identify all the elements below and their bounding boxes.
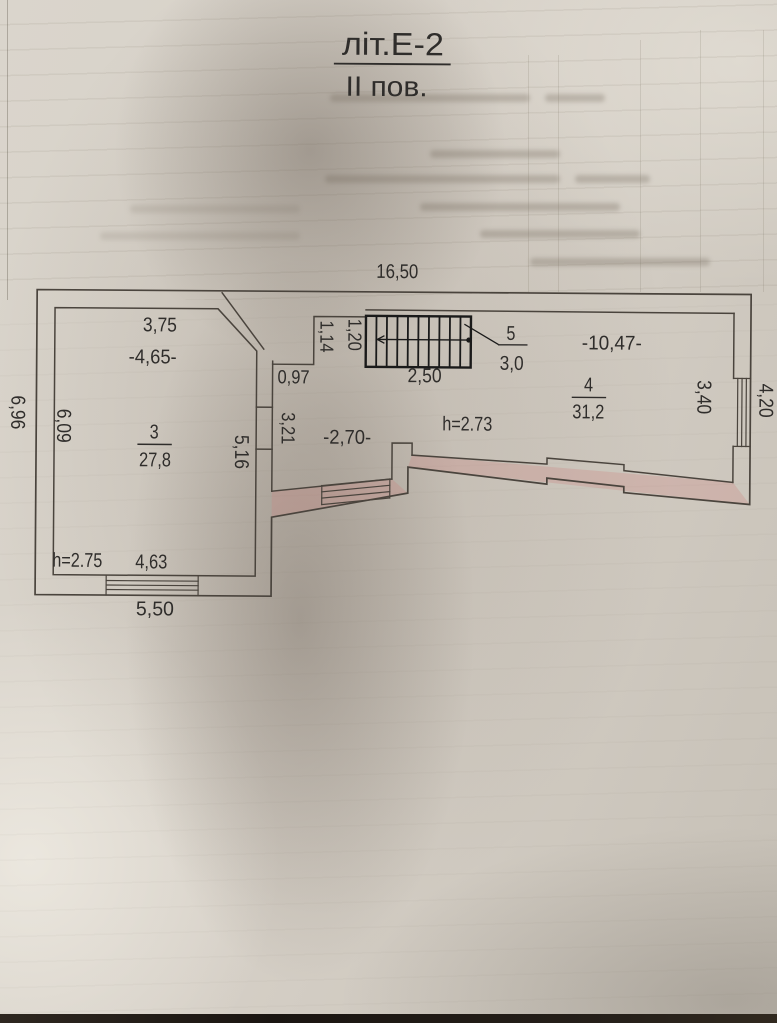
- hall-left-wall: [272, 361, 273, 491]
- dim-hall-width: -2,70-: [323, 427, 371, 449]
- dim-hall-left: 3,21: [277, 412, 298, 444]
- title-underline: [335, 64, 450, 65]
- chamfer-wall-line: [222, 293, 264, 349]
- staircase: [366, 316, 499, 368]
- room5-area: 3,0: [500, 353, 524, 375]
- dim-room4-width: -10,47-: [582, 332, 642, 354]
- room4-right-inner: [733, 313, 734, 482]
- floor-plan-drawing: літ.Е-2 ІІ пов. 16,50 3,75 -4,65- 3 27,8…: [0, 0, 777, 1023]
- dim-room3-bottom: 4,63: [135, 551, 167, 573]
- dim-recess-height: 1,14: [315, 320, 336, 353]
- dim-overall-top: 16,50: [376, 261, 418, 283]
- dim-room3-top-overall: -4,65-: [129, 346, 177, 368]
- stair-direction-line: [378, 339, 469, 340]
- room3-ceiling-height: h=2.75: [52, 550, 102, 572]
- top-inner-face: [366, 310, 734, 314]
- dim-outer-left: 6,96: [6, 395, 28, 429]
- window-room3-bottom: [106, 576, 198, 596]
- dim-room3-left: 6,09: [52, 409, 74, 443]
- dim-room3-top: 3,75: [143, 314, 177, 336]
- photographed-floor-plan: літ.Е-2 ІІ пов. 16,50 3,75 -4,65- 3 27,8…: [0, 0, 777, 1023]
- dim-recess-width: 0,97: [277, 367, 309, 388]
- dim-stairs-length: 2,50: [408, 365, 442, 387]
- door-opening-ticks: [256, 407, 272, 449]
- dim-room3-right-wall: 5,16: [230, 435, 252, 469]
- room4-number: 4: [584, 374, 593, 396]
- hall-ceiling-height: h=2.73: [442, 413, 492, 435]
- window-room4-right: [733, 378, 750, 446]
- wall-highlight: [272, 454, 750, 520]
- dim-outer-right: 4,20: [754, 384, 776, 418]
- title-line2: ІІ пов.: [346, 71, 428, 103]
- dimension-labels: 16,50 3,75 -4,65- 3 27,8 h=2.75 4,63 5,5…: [52, 259, 643, 624]
- room4-area: 31,2: [572, 401, 604, 423]
- stair-treads: [376, 316, 460, 368]
- photo-bottom-edge: [0, 1014, 777, 1023]
- room3-area: 27,8: [139, 449, 171, 471]
- room5-number: 5: [506, 323, 515, 345]
- dim-room4-right: 3,40: [692, 380, 714, 414]
- bottom-wall-step: [392, 443, 412, 479]
- label-underlines: [138, 342, 606, 447]
- title-line1: літ.Е-2: [342, 26, 444, 63]
- room3-number: 3: [150, 421, 159, 443]
- stair-direction-end-dot: [466, 337, 471, 342]
- dim-stairs-width: 1,20: [343, 319, 364, 351]
- dim-outer-bottom-left: 5,50: [136, 598, 174, 620]
- drawing-title: літ.Е-2 ІІ пов.: [335, 26, 451, 103]
